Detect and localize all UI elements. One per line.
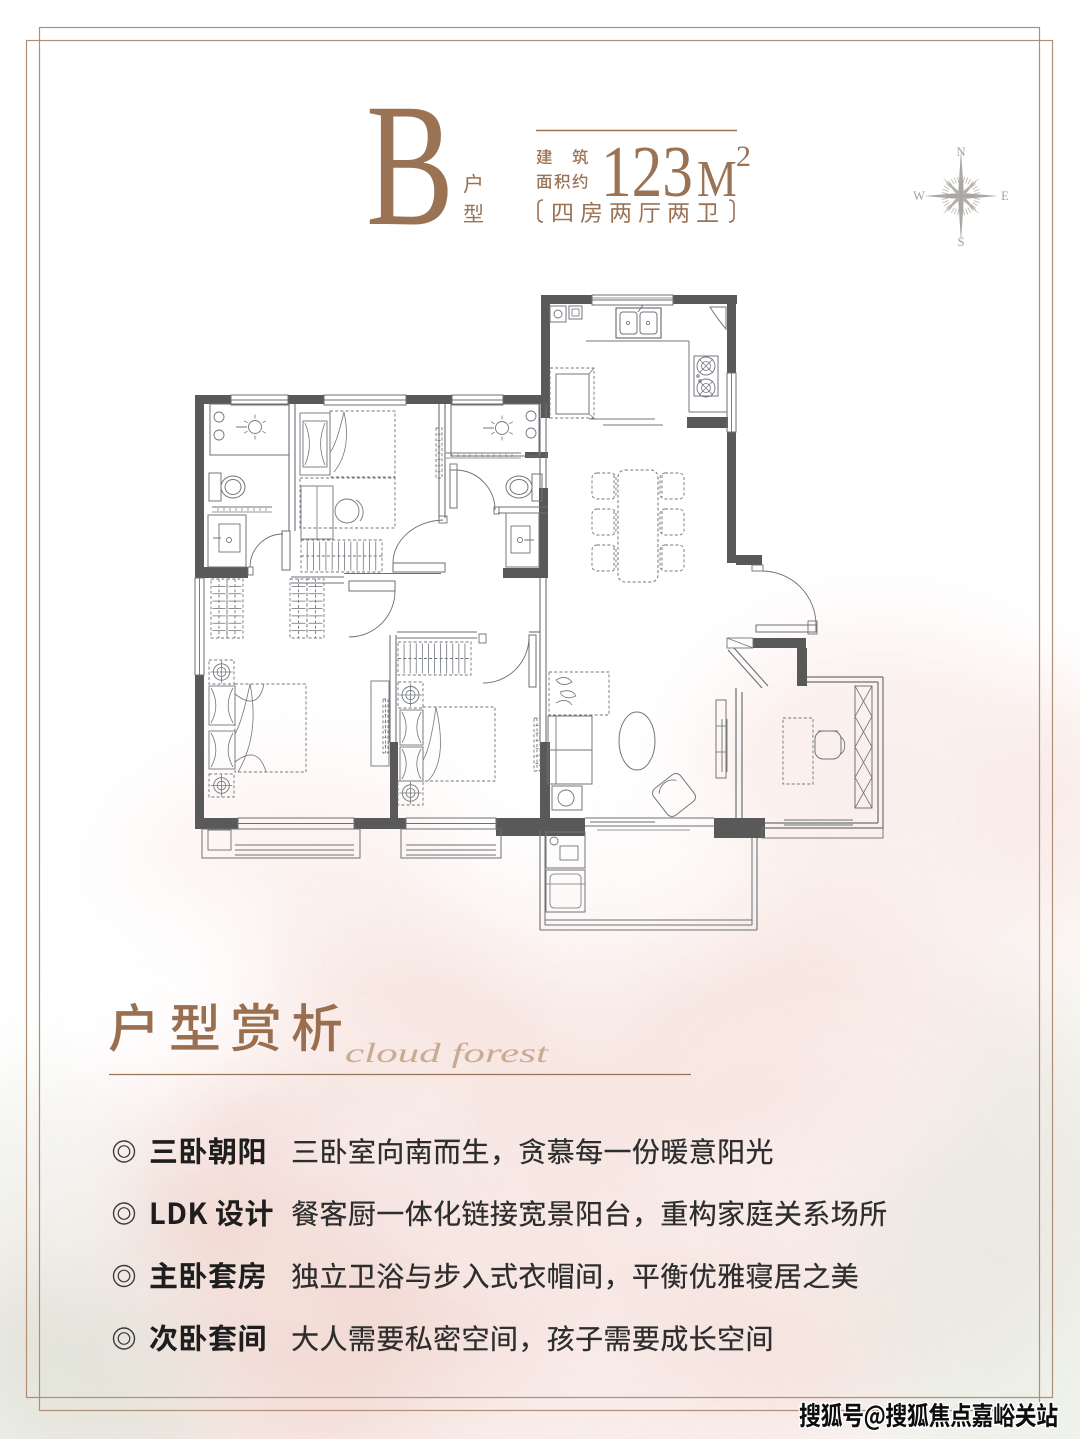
svg-text:W: W [913,189,925,203]
svg-text:E: E [1001,189,1009,203]
svg-text:123: 123 [601,131,693,212]
svg-text:M: M [697,151,737,208]
svg-text:cloud forest: cloud forest [345,1038,550,1068]
svg-text:N: N [956,145,965,159]
svg-text:S: S [958,235,965,249]
svg-text:B: B [366,67,454,263]
svg-text:2: 2 [736,140,751,173]
